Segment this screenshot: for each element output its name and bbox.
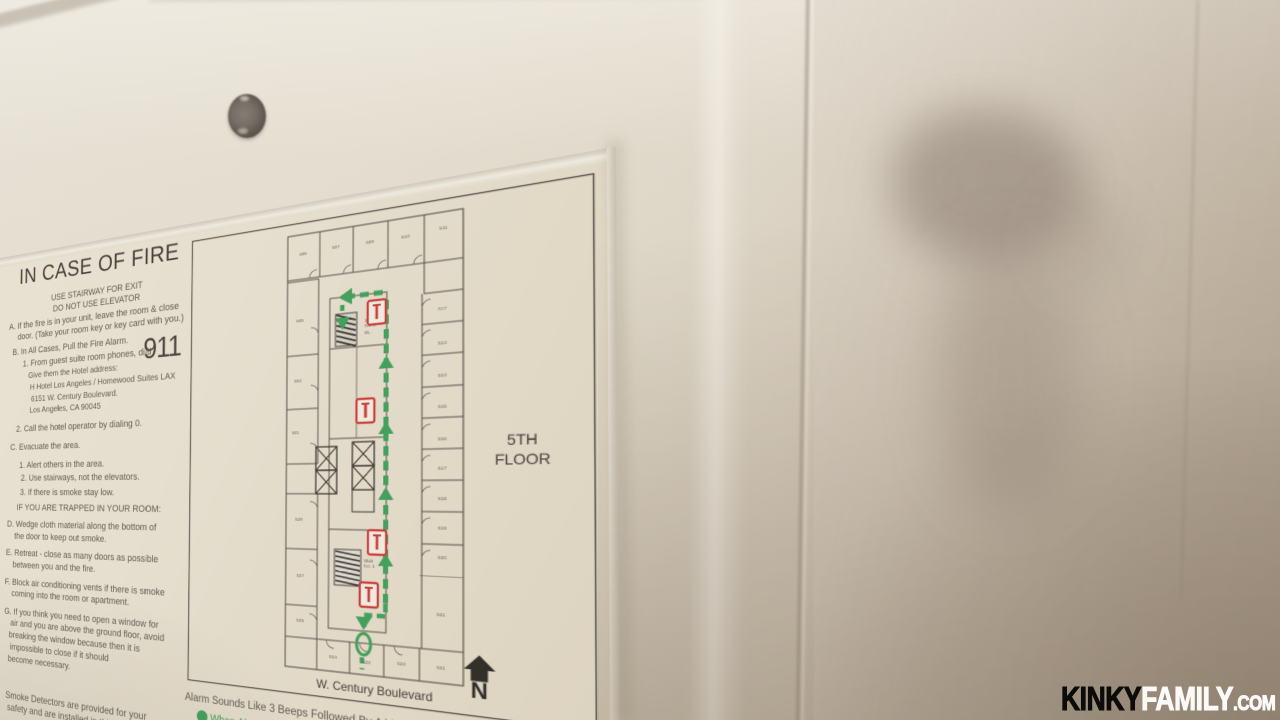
svg-text:514: 514 <box>438 371 448 378</box>
svg-text:507: 507 <box>332 243 340 250</box>
svg-text:529: 529 <box>295 516 302 522</box>
svg-text:522: 522 <box>397 660 405 667</box>
svg-text:506: 506 <box>300 250 307 257</box>
svg-text:513: 513 <box>438 339 447 346</box>
svg-text:511: 511 <box>439 224 447 232</box>
svg-text:501: 501 <box>292 429 299 435</box>
svg-text:518: 518 <box>438 495 447 502</box>
svg-text:512: 512 <box>438 305 447 312</box>
svg-text:510: 510 <box>401 233 409 240</box>
svg-text:519: 519 <box>438 524 447 531</box>
svg-text:515: 515 <box>438 403 447 410</box>
svg-text:521: 521 <box>437 611 446 618</box>
svg-text:No. 1: No. 1 <box>364 564 375 570</box>
svg-text:503: 503 <box>294 377 301 383</box>
svg-text:509: 509 <box>366 238 374 245</box>
svg-text:520: 520 <box>438 554 447 561</box>
svg-text:N: N <box>471 677 488 705</box>
svg-text:523: 523 <box>362 658 370 665</box>
svg-text:5TH: 5TH <box>507 432 538 449</box>
svg-text:FLOOR: FLOOR <box>495 451 551 468</box>
svg-text:521: 521 <box>437 664 446 671</box>
svg-text:EL.: EL. <box>365 330 372 336</box>
svg-text:516: 516 <box>438 435 447 442</box>
svg-text:505: 505 <box>296 317 303 324</box>
svg-text:517: 517 <box>438 464 447 471</box>
